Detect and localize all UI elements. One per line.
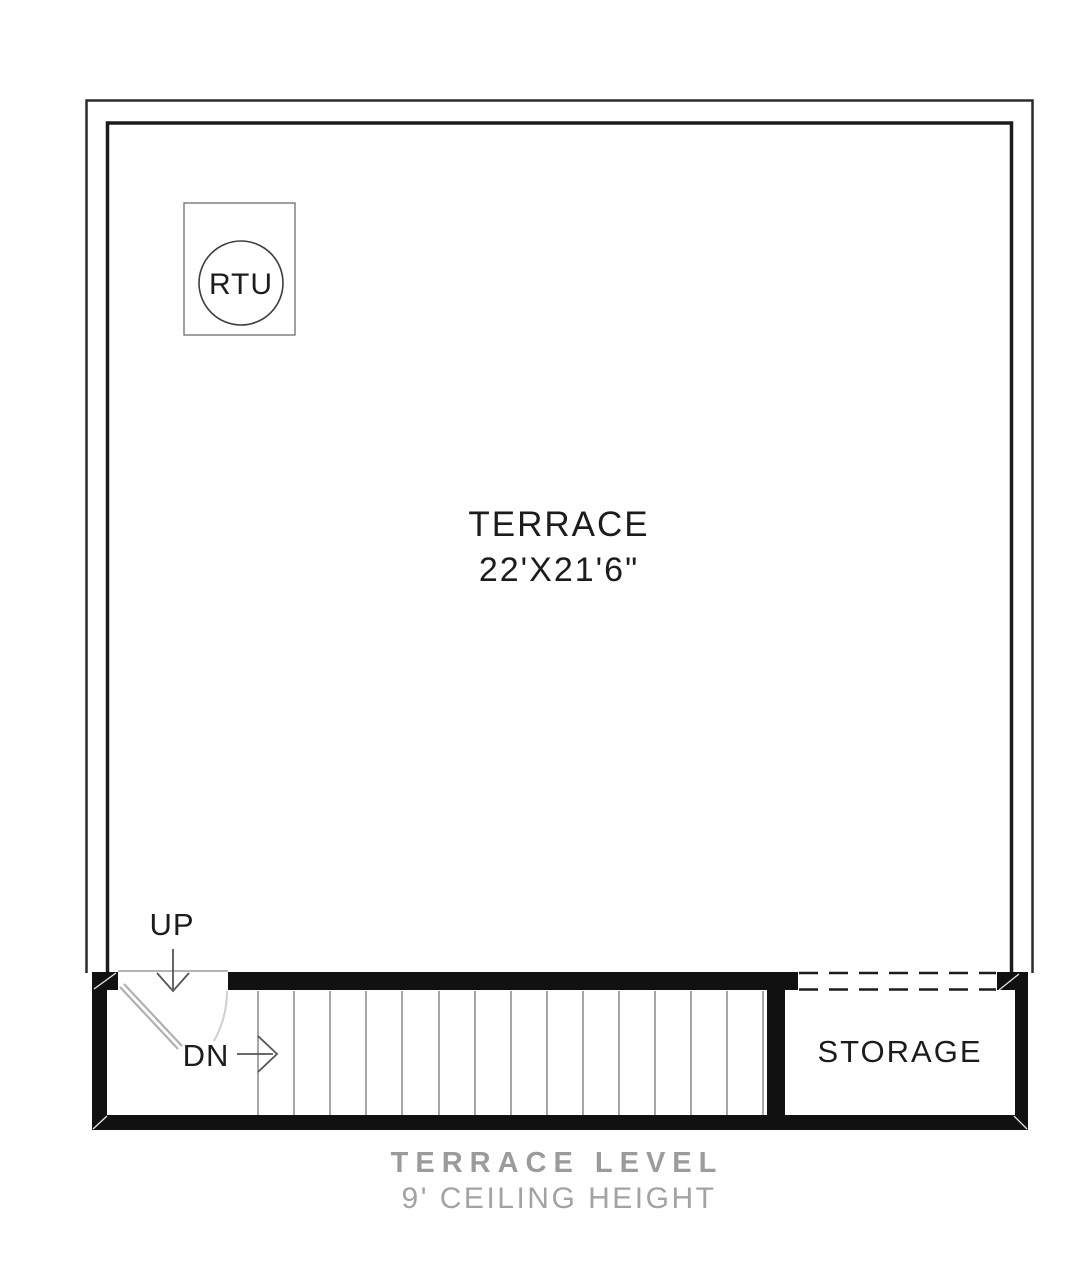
terrace-dimensions: 22'X21'6" — [479, 551, 639, 589]
door-panel-line-1 — [120, 987, 178, 1049]
caption-subtitle: 9' CEILING HEIGHT — [402, 1182, 717, 1215]
rtu-label: RTU — [209, 268, 273, 301]
wall-top-main — [228, 972, 798, 990]
dn-label: DN — [183, 1038, 230, 1073]
door-swing-arc — [214, 991, 227, 1041]
caption-title: TERRACE LEVEL — [391, 1147, 724, 1179]
terrace-name: TERRACE — [468, 505, 649, 544]
up-label: UP — [149, 907, 194, 942]
floor-plan-drawing: RTU TERRACE 22'X21'6" — [0, 0, 1080, 1285]
floor-plan-page: RTU TERRACE 22'X21'6" — [0, 0, 1080, 1285]
rtu-unit: RTU — [184, 203, 295, 335]
caption: TERRACE LEVEL 9' CEILING HEIGHT — [391, 1147, 724, 1215]
wall-stair-storage-divider — [767, 990, 785, 1116]
storage-label: STORAGE — [817, 1034, 982, 1069]
wall-bottom — [92, 1115, 1028, 1130]
wall-left — [92, 972, 107, 1130]
dn-arrow-icon — [237, 1036, 277, 1072]
terrace-room-label: TERRACE 22'X21'6" — [468, 505, 649, 589]
terrace-wall — [108, 123, 1012, 973]
door-panel-line-2 — [124, 984, 182, 1046]
up-annotation: UP — [149, 907, 194, 991]
up-arrow-icon — [157, 949, 189, 991]
dn-annotation: DN — [183, 1036, 277, 1073]
stair-treads — [258, 991, 763, 1115]
wall-right — [1015, 990, 1028, 1116]
